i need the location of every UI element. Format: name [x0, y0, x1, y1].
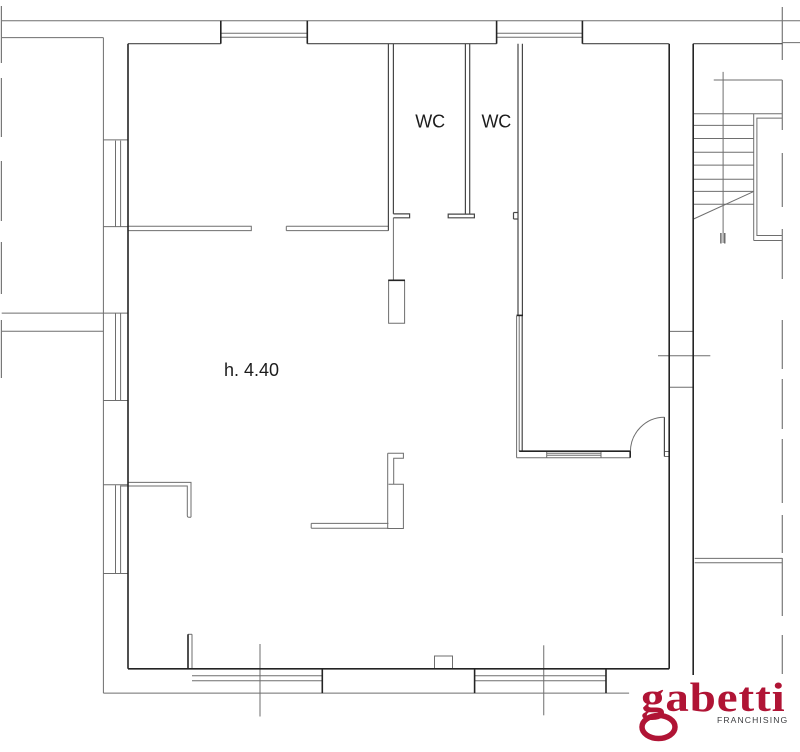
svg-text:h. 4.40: h. 4.40 — [224, 360, 279, 380]
svg-text:WC: WC — [415, 111, 445, 131]
svg-text:WC: WC — [482, 111, 512, 131]
svg-text:FRANCHISING: FRANCHISING — [717, 715, 788, 725]
